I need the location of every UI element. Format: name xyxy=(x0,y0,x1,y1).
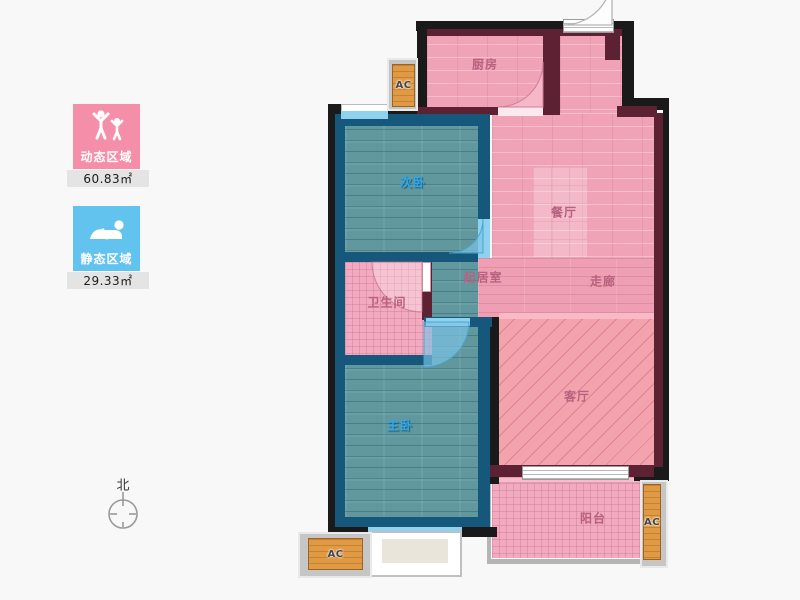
corridor-label: 走廊 xyxy=(590,273,616,290)
wall-blue-bottom-right xyxy=(456,527,497,537)
bedroom2-window-sill xyxy=(341,111,388,119)
ac-unit-top: AC xyxy=(392,64,415,107)
living-core-label: 起居室 xyxy=(463,269,502,286)
person-resting-icon xyxy=(87,217,127,247)
ac-bottom-right-label: AC xyxy=(644,517,660,528)
bedroom-second-label: 次卧 xyxy=(400,174,426,191)
living-room-top-divider xyxy=(499,313,654,319)
legend-dynamic-area-value: 60.83㎡ xyxy=(83,170,132,187)
wall-step-inner xyxy=(617,106,657,117)
legend-static-label: 静态区域 xyxy=(80,250,132,267)
wall-bedroom2-bathroom-divider xyxy=(335,252,478,262)
balcony-label: 阳台 xyxy=(580,510,606,527)
wall-bedroom2-right xyxy=(478,114,490,219)
ac-top-label: AC xyxy=(395,80,411,91)
balcony-floor xyxy=(492,483,640,558)
wall-kitchen-left xyxy=(417,21,427,110)
legend-static-zone[interactable]: 静态区域 xyxy=(73,206,140,271)
living-room-label: 客厅 xyxy=(564,388,590,405)
legend-static-area: 29.33㎡ xyxy=(67,272,149,289)
bedroom-master-door-leaf xyxy=(426,318,470,326)
compass-dial-icon xyxy=(98,478,148,534)
wall-blue-left-inner xyxy=(335,114,345,527)
bathroom-label: 卫生间 xyxy=(367,294,406,311)
bedroom-master-label: 主卧 xyxy=(387,417,413,434)
legend-dynamic-area: 60.83㎡ xyxy=(67,170,149,187)
kitchen-label: 厨房 xyxy=(472,56,498,73)
legend-static-area-value: 29.33㎡ xyxy=(83,272,132,289)
wall-living-left xyxy=(490,317,499,484)
wall-right-inner xyxy=(654,113,663,467)
kitchen-door-gap xyxy=(498,107,543,116)
wall-bedroom-master-right xyxy=(478,317,490,527)
wall-entry-stub xyxy=(605,29,620,60)
ac-bottom-left-label: AC xyxy=(327,549,343,560)
bathroom-door-leaf xyxy=(422,262,431,292)
living-balcony-window xyxy=(522,466,629,480)
bedroom2-door-leaf xyxy=(478,219,490,258)
bay-window-inner xyxy=(380,537,450,565)
wall-bathroom-bottom xyxy=(335,355,432,365)
ac-unit-bottom-right: AC xyxy=(643,484,661,560)
wall-right-upper xyxy=(622,21,634,106)
wall-blue-left-outer xyxy=(328,104,335,537)
wall-blue-bottom-inner xyxy=(335,517,490,527)
legend-dynamic-zone[interactable]: 动态区域 xyxy=(73,104,140,169)
ac-unit-bottom-left: AC xyxy=(308,538,363,570)
dining-label: 餐厅 xyxy=(551,204,577,221)
wall-kitchen-dining-divider xyxy=(543,31,560,115)
wall-right-lower xyxy=(663,104,669,481)
compass: 北 xyxy=(98,478,148,534)
entrance-door-gap xyxy=(563,19,614,33)
legend-dynamic-label: 动态区域 xyxy=(80,148,132,165)
people-active-icon xyxy=(87,109,127,145)
floor-plan-canvas: AC AC AC 厨房 餐厅 次卧 起居室 走廊 卫生间 主卧 客厅 阳台 xyxy=(0,0,800,600)
